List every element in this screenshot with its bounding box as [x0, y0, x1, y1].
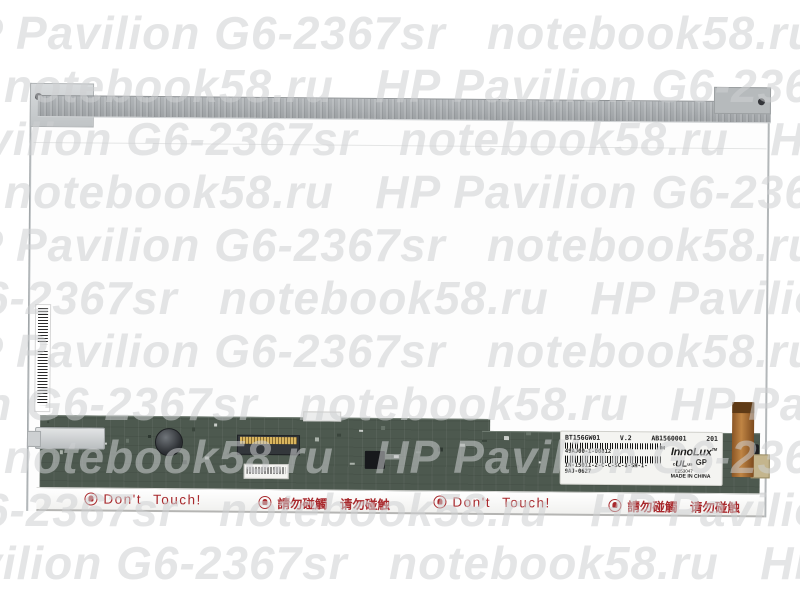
label-serial: AB1560001 [651, 435, 686, 442]
smd-component [337, 434, 341, 437]
lcd-panel-back: BT156GW01 V.2 AB1560001 201 49AJ00-1-008… [26, 83, 771, 519]
smd-component [381, 426, 385, 430]
smd-component [47, 421, 49, 423]
smd-component [227, 453, 231, 455]
label-batch: 201 [706, 436, 718, 443]
barcode [37, 351, 47, 405]
label-version: V.2 [620, 435, 632, 442]
label-code2: IN-15011-2-C-C-SC-1-SH-1-9AJ-0627 [565, 463, 661, 476]
label-m-mark: M [661, 445, 665, 451]
smd-component [438, 447, 443, 451]
flex-cable [732, 402, 755, 477]
warning-text-zh: 請勿碰觸 请勿碰触 [627, 496, 740, 516]
smd-component [359, 430, 363, 432]
warning-text-en: Don't Touch! [103, 492, 202, 508]
smd-component [126, 439, 129, 443]
smd-component [60, 450, 63, 454]
warning-group: Don't Touch! [84, 491, 202, 507]
smd-component [539, 461, 541, 463]
smd-component [526, 432, 531, 435]
smd-component [504, 436, 509, 440]
smd-component [460, 444, 465, 447]
smd-component [192, 427, 195, 431]
smd-component [205, 456, 209, 459]
made-in-china: MADE IN CHINA [671, 473, 718, 479]
dont-touch-hand-icon [258, 496, 271, 509]
watermark-text: HP Pavilion G6-2367sr notebook58.ru HP P… [0, 540, 800, 586]
smd-component [416, 451, 421, 453]
smd-component [183, 460, 187, 464]
connector-pins [240, 437, 297, 444]
metal-bracket-nub [27, 431, 41, 447]
innolux-logo: InnoLuxTM [671, 444, 718, 459]
dont-touch-hand-icon [433, 495, 446, 508]
smd-component [350, 463, 355, 465]
warning-group: 請勿碰觸 请勿碰触 [608, 496, 740, 516]
screw-hole [758, 98, 765, 105]
protective-film-strip: Don't Touch! 請勿碰觸 请勿碰触 Don't Touch! 請勿碰觸… [36, 487, 764, 517]
side-barcode-sticker [34, 304, 51, 412]
metal-bracket [35, 427, 105, 450]
warning-group: Don't Touch! [433, 494, 551, 510]
connector-barcode-label [244, 464, 289, 479]
warning-text-en: Don't Touch! [452, 495, 551, 511]
smd-component [315, 437, 319, 441]
watermark-text: HP Pavilion G6-2367sr notebook58.ru HP P… [0, 10, 800, 56]
smd-component [148, 435, 151, 438]
smd-component [394, 455, 399, 458]
ul-mark: c UL us GP [673, 459, 718, 468]
warning-text-zh: 請勿碰觸 请勿碰触 [277, 493, 390, 513]
top-right-metal-block [714, 87, 771, 114]
barcode [247, 467, 286, 474]
warning-group: 請勿碰觸 请勿碰触 [258, 493, 390, 513]
panel-info-label: BT156GW01 V.2 AB1560001 201 49AJ00-1-008… [560, 431, 723, 486]
smd-component [214, 424, 217, 427]
dont-touch-hand-icon [84, 492, 97, 505]
smd-component [517, 465, 519, 468]
smd-component [482, 440, 487, 442]
cable-end-cap [732, 402, 754, 413]
gp-mark: GP [696, 458, 708, 467]
label-model: BT156GW01 [565, 435, 600, 442]
dont-touch-hand-icon [608, 499, 621, 512]
product-photo: BT156GW01 V.2 AB1560001 201 49AJ00-1-008… [0, 0, 800, 600]
barcode [38, 308, 48, 344]
label-code1: 49AJ00-1-00812 [565, 449, 661, 456]
round-component [155, 428, 183, 456]
small-sticker [303, 411, 341, 421]
driver-ic [365, 451, 385, 469]
lvds-connector [237, 435, 300, 456]
